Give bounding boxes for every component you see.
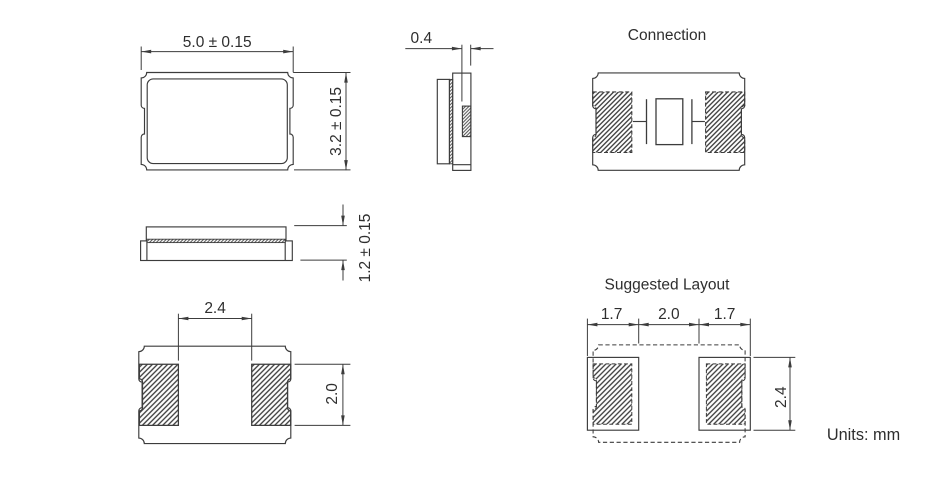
svg-text:Connection: Connection bbox=[628, 27, 706, 44]
svg-text:Suggested Layout: Suggested Layout bbox=[605, 277, 731, 294]
svg-text:1.7: 1.7 bbox=[601, 306, 623, 323]
svg-text:2.4: 2.4 bbox=[773, 386, 790, 408]
svg-text:5.0 ± 0.15: 5.0 ± 0.15 bbox=[183, 34, 252, 51]
svg-text:3.2 ± 0.15: 3.2 ± 0.15 bbox=[328, 87, 345, 156]
svg-text:2.4: 2.4 bbox=[204, 300, 226, 317]
svg-text:0.4: 0.4 bbox=[411, 30, 433, 47]
svg-text:1.7: 1.7 bbox=[714, 306, 736, 323]
svg-text:Units: mm: Units: mm bbox=[827, 426, 900, 444]
svg-text:2.0: 2.0 bbox=[324, 383, 341, 405]
svg-text:2.0: 2.0 bbox=[658, 306, 680, 323]
svg-text:1.2 ± 0.15: 1.2 ± 0.15 bbox=[357, 214, 374, 283]
